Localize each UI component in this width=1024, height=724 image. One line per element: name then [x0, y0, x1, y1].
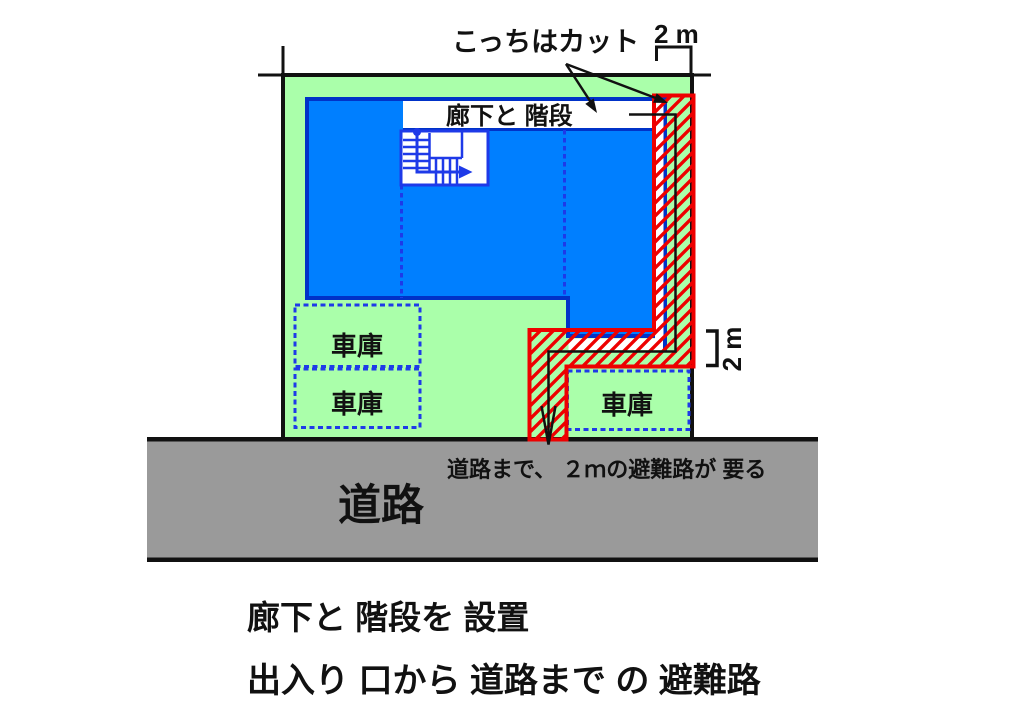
caption-line-1: 廊下と 階段を 設置 — [247, 599, 529, 636]
caption-line-2: 出入り 口から 道路まで の 避難路 — [247, 662, 762, 700]
dim-top-label: 2 m — [654, 19, 699, 49]
dim-bracket-right — [706, 331, 717, 366]
road-label: 道路 — [338, 482, 425, 530]
road-area — [147, 437, 818, 562]
dim-right-label: 2 m — [717, 327, 747, 372]
cut-annotation-label: こっちはカット — [452, 27, 639, 57]
corridor-label: 廊下と 階段 — [446, 102, 573, 130]
staircase — [401, 128, 488, 185]
diagram-canvas: こっちはカット 2 m 廊下と 階段 車庫 車庫 車庫 2 m 道路まで、 ２ｍ… — [0, 0, 1024, 724]
garage-label-3: 車庫 — [601, 390, 653, 420]
site-plan-diagram: こっちはカット 2 m 廊下と 階段 車庫 車庫 車庫 2 m 道路まで、 ２ｍ… — [0, 0, 1024, 724]
dim-bracket-top — [657, 47, 692, 75]
road-note-label: 道路まで、 ２ｍの避難路が 要る — [447, 457, 766, 482]
garage-label-1: 車庫 — [331, 331, 383, 361]
garage-label-2: 車庫 — [331, 389, 383, 419]
